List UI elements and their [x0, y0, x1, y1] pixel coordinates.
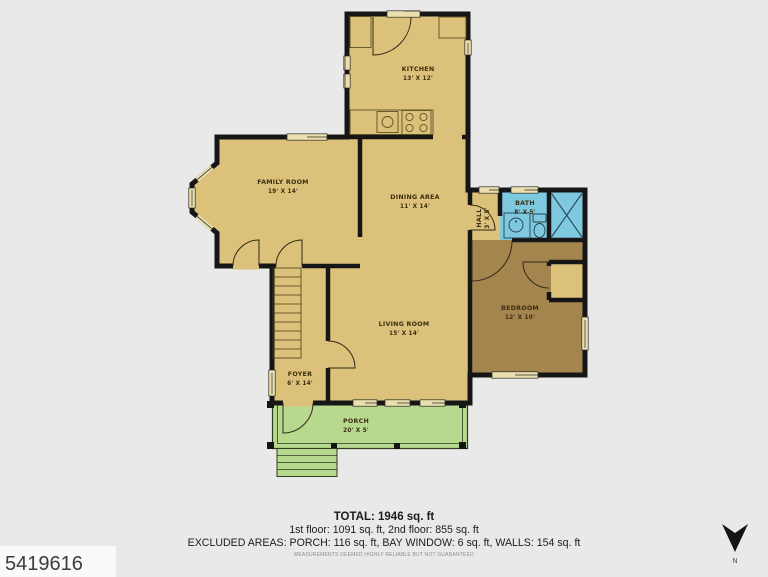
svg-text:FOYER: FOYER: [288, 371, 312, 378]
svg-text:FAMILY ROOM: FAMILY ROOM: [257, 179, 308, 186]
svg-text:PORCH: PORCH: [343, 418, 369, 425]
svg-text:8' X 5': 8' X 5': [514, 210, 536, 216]
svg-text:BEDROOM: BEDROOM: [501, 305, 539, 312]
north-label: N: [732, 558, 737, 565]
svg-text:6' X 14': 6' X 14': [287, 381, 313, 387]
summary-disclaimer: MEASUREMENTS DEEMED HIGHLY RELIABLE BUT …: [294, 552, 474, 558]
floorplan-image: KITCHEN 13' X 12' FAMILY ROOM 19' X 14' …: [0, 0, 768, 577]
svg-text:20' X 5': 20' X 5': [343, 428, 369, 434]
closet-floor: [551, 262, 583, 300]
listing-id-box: 5419616: [0, 546, 116, 577]
svg-text:BATH: BATH: [515, 200, 535, 207]
listing-id: 5419616: [5, 553, 83, 575]
floorplan-svg: KITCHEN 13' X 12' FAMILY ROOM 19' X 14' …: [0, 0, 768, 577]
svg-text:DINING AREA: DINING AREA: [390, 194, 439, 201]
svg-text:12' X 10': 12' X 10': [505, 315, 535, 321]
porch-steps: [277, 449, 337, 477]
svg-text:KITCHEN: KITCHEN: [402, 66, 435, 73]
svg-text:15' X 14': 15' X 14': [389, 331, 419, 337]
svg-text:LIVING ROOM: LIVING ROOM: [379, 321, 430, 328]
svg-text:3' X 5': 3' X 5': [485, 207, 491, 229]
svg-text:13' X 12': 13' X 12': [403, 76, 433, 82]
svg-text:19' X 14': 19' X 14': [268, 189, 298, 195]
svg-text:11' X 14': 11' X 14': [400, 204, 430, 210]
summary-total: TOTAL: 1946 sq. ft: [334, 511, 435, 523]
svg-text:HALL: HALL: [476, 208, 483, 227]
summary-floors: 1st floor: 1091 sq. ft, 2nd floor: 855 s…: [289, 524, 479, 536]
summary-excluded: EXCLUDED AREAS: PORCH: 116 sq. ft, BAY W…: [188, 537, 581, 549]
bath-floor: [500, 190, 585, 240]
